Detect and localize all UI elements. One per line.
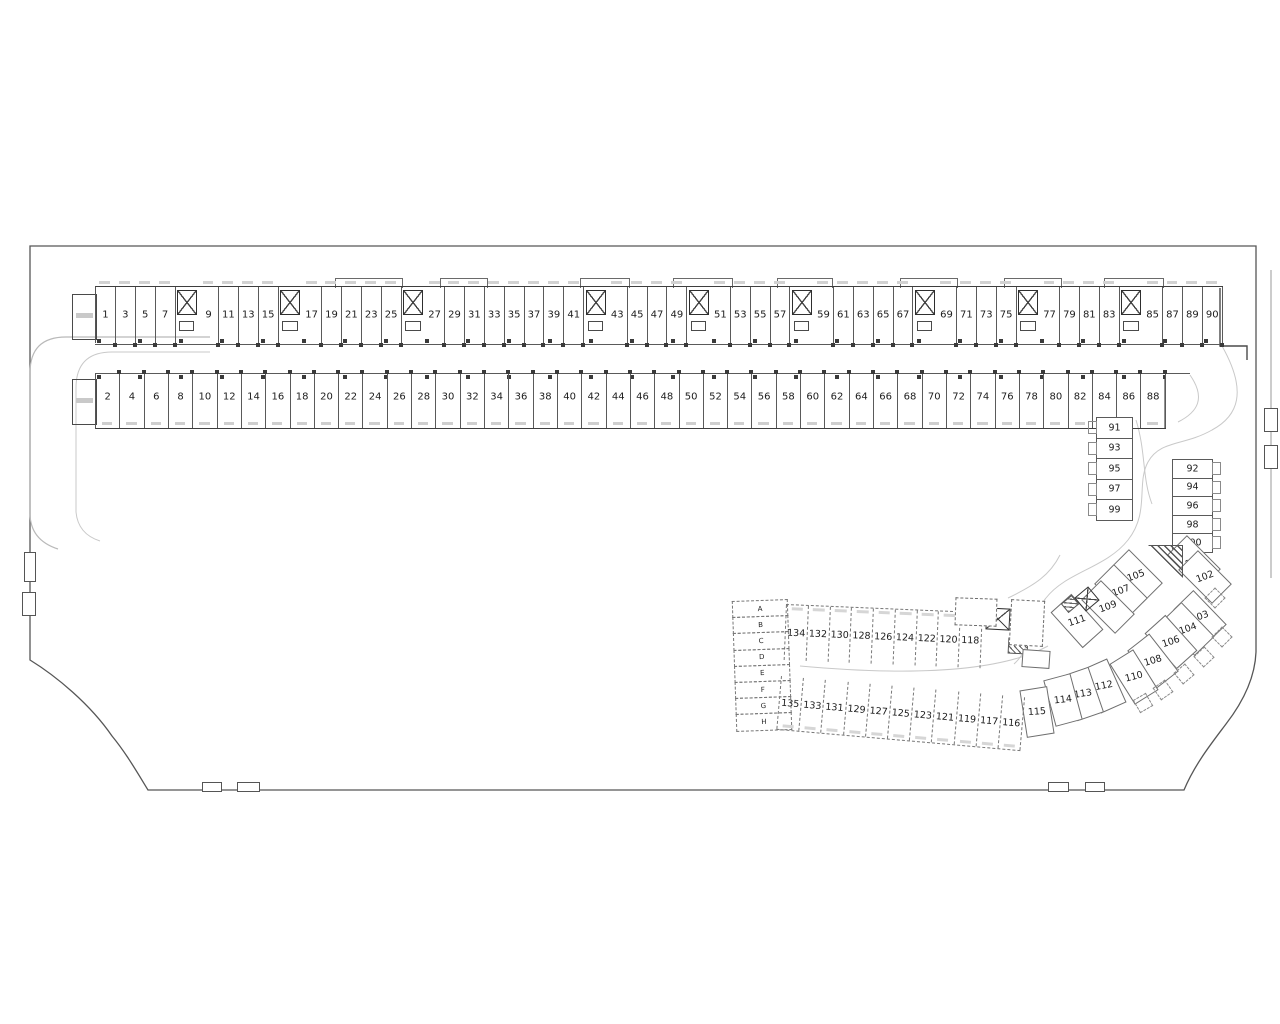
stall-number: 2 <box>104 391 110 402</box>
stall-number: 110 <box>1124 669 1144 684</box>
stall-number: 97 <box>1108 484 1120 495</box>
parking-stall-56: 56 <box>752 374 776 428</box>
stall-number: 114 <box>1053 693 1072 706</box>
stall-number: 52 <box>709 391 722 402</box>
parking-stall-11: 11 <box>219 287 239 343</box>
stall-number: 55 <box>754 310 767 321</box>
stall-number: 35 <box>508 310 521 321</box>
stall-number: 85 <box>1146 310 1159 321</box>
parking-stall-4: 4 <box>120 374 144 428</box>
stall-number: 22 <box>344 391 357 402</box>
stall-number: 134 <box>787 627 806 639</box>
stall-number: 130 <box>830 629 849 641</box>
boundary-gate <box>202 782 222 792</box>
stall-number: 111 <box>1067 613 1088 629</box>
parking-stall-87: 87 <box>1163 287 1183 343</box>
parking-stall-1: 1 <box>96 287 116 343</box>
stall-number: 46 <box>636 391 649 402</box>
stall-number: 18 <box>296 391 309 402</box>
stall-number: 108 <box>1143 653 1164 669</box>
parking-stall-47: 47 <box>648 287 668 343</box>
stall-number: 124 <box>896 632 915 644</box>
stall-number: 29 <box>448 310 461 321</box>
stall-number: 96 <box>1186 500 1198 511</box>
parking-stall-62: 62 <box>825 374 849 428</box>
boundary-gate <box>237 782 260 792</box>
stair-elevator-box <box>1120 287 1144 343</box>
stall-number: 72 <box>952 391 965 402</box>
parking-stall-69: 69 <box>937 287 957 343</box>
stall-number: 127 <box>869 705 888 718</box>
drive-lane-curve <box>1136 420 1152 504</box>
stall-number: 117 <box>980 715 999 728</box>
stall-number: 32 <box>466 391 479 402</box>
parking-stall-23: 23 <box>362 287 382 343</box>
parking-stall-79: 79 <box>1060 287 1080 343</box>
stall-number: 51 <box>714 310 727 321</box>
stall-number: 61 <box>837 310 850 321</box>
stall-number: 91 <box>1108 422 1120 433</box>
stall-number: G <box>761 702 767 710</box>
stall-number: 49 <box>671 310 684 321</box>
parking-stall-63: 63 <box>854 287 874 343</box>
parking-stall-73: 73 <box>977 287 997 343</box>
parking-stall-36: 36 <box>509 374 533 428</box>
parking-stall-49: 49 <box>667 287 687 343</box>
stall-number: 44 <box>612 391 625 402</box>
service-room <box>955 597 998 626</box>
stair-elevator-box <box>584 287 608 343</box>
parking-stall-59: 59 <box>814 287 834 343</box>
parking-stall-83: 83 <box>1100 287 1120 343</box>
stall-number: 119 <box>958 713 977 726</box>
stall-column-91-99: 9193959799 <box>1096 417 1133 521</box>
parking-stall-93: 93 <box>1096 439 1133 460</box>
parking-stall-41: 41 <box>564 287 584 343</box>
stall-number: 121 <box>935 711 954 724</box>
stall-number: 90 <box>1206 310 1219 321</box>
stall-number: 133 <box>803 699 822 712</box>
stall-number: 8 <box>177 391 183 402</box>
parking-stall-80: 80 <box>1044 374 1068 428</box>
parking-stall-20: 20 <box>315 374 339 428</box>
stall-number: 19 <box>325 310 338 321</box>
stall-number: 129 <box>847 703 866 716</box>
stall-number: 63 <box>857 310 870 321</box>
parking-stall-9: 9 <box>199 287 219 343</box>
stall-number: 70 <box>928 391 941 402</box>
stall-number: 33 <box>488 310 501 321</box>
stair-elevator-box <box>913 287 937 343</box>
parking-stall-88: 88 <box>1141 374 1165 428</box>
lower-upper-stall-row: 134132130128126124122120118 <box>784 604 983 668</box>
parking-stall-45: 45 <box>628 287 648 343</box>
parking-stall-116: 116 <box>998 695 1025 750</box>
stall-number: 68 <box>904 391 917 402</box>
parking-stall-34: 34 <box>485 374 509 428</box>
stall-number: 57 <box>774 310 787 321</box>
stall-number: 45 <box>631 310 644 321</box>
parking-stall-122: 122 <box>915 611 939 667</box>
parking-stall-99: 99 <box>1096 500 1133 521</box>
stall-number: 53 <box>734 310 747 321</box>
stall-number: 58 <box>782 391 795 402</box>
parking-stall-94: 94 <box>1172 479 1213 498</box>
parking-stall-98: 98 <box>1172 516 1213 535</box>
parking-stall-2: 2 <box>96 374 120 428</box>
parking-stall-126: 126 <box>872 609 896 665</box>
parking-stall-124: 124 <box>893 610 917 666</box>
stall-number: 95 <box>1108 463 1120 474</box>
parking-stall-60: 60 <box>801 374 825 428</box>
parking-stall-54: 54 <box>728 374 752 428</box>
parking-stall-90: 90 <box>1203 287 1223 343</box>
parking-stall-14: 14 <box>242 374 266 428</box>
parking-stall-78: 78 <box>1020 374 1044 428</box>
parking-stall-40: 40 <box>558 374 582 428</box>
stall-number: 16 <box>271 391 284 402</box>
parking-stall-85: 85 <box>1143 287 1163 343</box>
stair-elevator-box <box>176 287 200 343</box>
stall-number: 74 <box>977 391 990 402</box>
parking-stall-5: 5 <box>136 287 156 343</box>
stall-number: 71 <box>960 310 973 321</box>
stall-number: 54 <box>733 391 746 402</box>
street-door <box>1264 408 1278 432</box>
stall-number: 135 <box>781 697 800 710</box>
stair-elevator-box <box>687 287 711 343</box>
stall-number: 88 <box>1147 391 1160 402</box>
stall-number: 115 <box>1028 706 1047 718</box>
parking-stall-76: 76 <box>996 374 1020 428</box>
parking-stall-65: 65 <box>874 287 894 343</box>
parking-stall-64: 64 <box>850 374 874 428</box>
stall-number: 12 <box>223 391 236 402</box>
parking-stall-13: 13 <box>239 287 259 343</box>
stall-number: 93 <box>1108 443 1120 454</box>
stall-number: 92 <box>1186 463 1198 474</box>
parking-stall-67: 67 <box>894 287 914 343</box>
parking-stall-31: 31 <box>465 287 485 343</box>
parking-stall-58: 58 <box>777 374 801 428</box>
stall-number: 47 <box>651 310 664 321</box>
stall-number: F <box>761 685 765 693</box>
parking-stall-128: 128 <box>850 608 874 664</box>
stair-elevator-box <box>790 287 814 343</box>
stall-number: 13 <box>242 310 255 321</box>
stall-number: 116 <box>1002 716 1021 729</box>
parking-stall-50: 50 <box>680 374 704 428</box>
stall-number: 81 <box>1083 310 1096 321</box>
parking-stall-92: 92 <box>1172 459 1213 479</box>
parking-stall-16: 16 <box>266 374 290 428</box>
floor-plan-canvas: 1357911131517192123252729313335373941434… <box>0 0 1280 1024</box>
parking-stall-28: 28 <box>412 374 436 428</box>
stall-number: 9 <box>205 310 211 321</box>
stall-number: 56 <box>758 391 771 402</box>
parking-stall-96: 96 <box>1172 497 1213 516</box>
parking-stall-44: 44 <box>607 374 631 428</box>
stall-number: 126 <box>874 631 893 643</box>
stall-number: 128 <box>852 630 871 642</box>
stall-number: 24 <box>369 391 382 402</box>
stall-number: 66 <box>879 391 892 402</box>
stall-number: 99 <box>1108 504 1120 515</box>
parking-stall-70: 70 <box>923 374 947 428</box>
street-door <box>1264 445 1278 469</box>
stall-number: 5 <box>142 310 148 321</box>
parking-stall-72: 72 <box>947 374 971 428</box>
parking-stall-29: 29 <box>445 287 465 343</box>
stall-number: 59 <box>817 310 830 321</box>
parking-stall-17: 17 <box>302 287 322 343</box>
parking-stall-18: 18 <box>291 374 315 428</box>
boundary-gate <box>22 592 36 616</box>
stall-number: 123 <box>913 709 932 722</box>
parking-stall-12: 12 <box>218 374 242 428</box>
stall-number: 4 <box>129 391 135 402</box>
stall-number: 125 <box>891 707 910 720</box>
parking-stall-130: 130 <box>828 607 852 663</box>
vestibule <box>72 294 97 340</box>
parking-stall-22: 22 <box>339 374 363 428</box>
stall-number: 30 <box>442 391 455 402</box>
service-room <box>1009 599 1045 647</box>
parking-stall-52: 52 <box>704 374 728 428</box>
stall-number: C <box>759 637 764 645</box>
stall-number: 14 <box>247 391 260 402</box>
stall-number: 39 <box>548 310 561 321</box>
stall-number: 11 <box>222 310 235 321</box>
parking-stall-3: 3 <box>116 287 136 343</box>
parking-stall-77: 77 <box>1040 287 1060 343</box>
stall-number: 25 <box>385 310 398 321</box>
entry-ramp-outer <box>30 337 210 549</box>
stall-number: 43 <box>611 310 624 321</box>
parking-stall-7: 7 <box>156 287 176 343</box>
parking-stall-43: 43 <box>608 287 628 343</box>
parking-stall-68: 68 <box>898 374 922 428</box>
bottom-stall-row: 2468101214161820222426283032343638404244… <box>95 374 1166 429</box>
stall-number: 94 <box>1186 482 1198 493</box>
stall-number: 21 <box>345 310 358 321</box>
stall-number: 60 <box>806 391 819 402</box>
parking-stall-32: 32 <box>461 374 485 428</box>
aisle-edge-upper <box>95 344 1222 345</box>
parking-stall-81: 81 <box>1080 287 1100 343</box>
parking-stall-24: 24 <box>363 374 387 428</box>
parking-stall-42: 42 <box>582 374 606 428</box>
parking-stall-10: 10 <box>193 374 217 428</box>
stall-number: 79 <box>1063 310 1076 321</box>
stall-number: 36 <box>515 391 528 402</box>
stair-elevator-box <box>1017 287 1041 343</box>
stair-elevator-box <box>402 287 426 343</box>
parking-stall-53: 53 <box>731 287 751 343</box>
boundary-gate <box>24 552 36 582</box>
parking-stall-71: 71 <box>957 287 977 343</box>
stall-number: 87 <box>1166 310 1179 321</box>
stall-number: 69 <box>940 310 953 321</box>
stall-number: 41 <box>567 310 580 321</box>
stall-number: 76 <box>1001 391 1014 402</box>
parking-stall-134: 134 <box>784 605 809 661</box>
parking-stall-6: 6 <box>145 374 169 428</box>
drive-lane-curve <box>1178 375 1199 422</box>
stall-number: 27 <box>428 310 441 321</box>
stall-number: 86 <box>1122 391 1135 402</box>
parking-stall-89: 89 <box>1183 287 1203 343</box>
stall-number: 64 <box>855 391 868 402</box>
boundary-gate <box>1085 782 1105 792</box>
parking-stall-8: 8 <box>169 374 193 428</box>
parking-stall-48: 48 <box>655 374 679 428</box>
stall-number: 34 <box>490 391 503 402</box>
parking-stall-38: 38 <box>534 374 558 428</box>
stall-number: 48 <box>660 391 673 402</box>
parking-stall-57: 57 <box>771 287 791 343</box>
stall-number: 83 <box>1103 310 1116 321</box>
stall-number: 40 <box>563 391 576 402</box>
stair-elevator-box <box>279 287 303 343</box>
stall-number: 67 <box>897 310 910 321</box>
stall-number: 98 <box>1186 519 1198 530</box>
parking-stall-55: 55 <box>751 287 771 343</box>
service-room <box>1021 649 1050 669</box>
parking-stall-25: 25 <box>382 287 402 343</box>
stall-number: 77 <box>1043 310 1056 321</box>
stall-number: B <box>758 621 763 629</box>
parking-stall-74: 74 <box>971 374 995 428</box>
boundary-gate <box>1048 782 1069 792</box>
parking-stall-95: 95 <box>1096 459 1133 480</box>
parking-stall-39: 39 <box>544 287 564 343</box>
stall-number: 120 <box>939 633 958 645</box>
parking-stall-19: 19 <box>322 287 342 343</box>
stall-number: 73 <box>980 310 993 321</box>
stall-number: 75 <box>1000 310 1013 321</box>
stall-number: 80 <box>1049 391 1062 402</box>
stall-number: E <box>760 669 765 677</box>
stall-number: 3 <box>122 310 128 321</box>
stall-number: 31 <box>468 310 481 321</box>
stall-number: 1 <box>102 310 108 321</box>
parking-stall-66: 66 <box>874 374 898 428</box>
parking-stall-30: 30 <box>436 374 460 428</box>
stall-number: 122 <box>917 633 936 645</box>
parking-stall-35: 35 <box>505 287 525 343</box>
stall-number: 26 <box>393 391 406 402</box>
parking-stall-15: 15 <box>259 287 279 343</box>
parking-stall-51: 51 <box>711 287 731 343</box>
stall-number: 65 <box>877 310 890 321</box>
parking-stall-75: 75 <box>997 287 1017 343</box>
stall-number: 37 <box>528 310 541 321</box>
stall-number: 78 <box>1025 391 1038 402</box>
stall-number: 50 <box>685 391 698 402</box>
parking-stall-91: 91 <box>1096 417 1133 439</box>
stall-number: 28 <box>417 391 430 402</box>
stall-number: 84 <box>1098 391 1111 402</box>
stall-column-92-100: 92949698100 <box>1172 459 1213 553</box>
stall-number: 62 <box>831 391 844 402</box>
stall-number: 42 <box>588 391 601 402</box>
stall-number: D <box>759 653 765 661</box>
stall-number: 10 <box>199 391 212 402</box>
stall-number: 132 <box>809 628 828 640</box>
stall-number: 118 <box>961 634 980 646</box>
stall-number: 89 <box>1186 310 1199 321</box>
stall-number: 38 <box>539 391 552 402</box>
stall-number: 109 <box>1098 599 1119 616</box>
stall-number: 17 <box>305 310 318 321</box>
stall-number: 23 <box>365 310 378 321</box>
parking-stall-21: 21 <box>342 287 362 343</box>
parking-stall-27: 27 <box>425 287 445 343</box>
stall-number: 15 <box>262 310 275 321</box>
parking-stall-37: 37 <box>525 287 545 343</box>
stall-number: 131 <box>825 701 844 714</box>
stall-number: H <box>761 718 767 726</box>
parking-stall-82: 82 <box>1069 374 1093 428</box>
parking-stall-132: 132 <box>806 606 830 662</box>
vestibule <box>72 379 97 425</box>
stall-number: 102 <box>1195 569 1216 586</box>
parking-stall-61: 61 <box>834 287 854 343</box>
stall-number: 20 <box>320 391 333 402</box>
parking-stall-33: 33 <box>485 287 505 343</box>
parking-stall-46: 46 <box>631 374 655 428</box>
stall-number: A <box>758 605 763 613</box>
stall-number: 7 <box>162 310 168 321</box>
parking-stall-97: 97 <box>1096 480 1133 501</box>
parking-stall-26: 26 <box>388 374 412 428</box>
top-stall-row: 1357911131517192123252729313335373941434… <box>95 286 1223 343</box>
stall-number: 106 <box>1161 634 1182 650</box>
stall-number: 6 <box>153 391 159 402</box>
stall-number: 82 <box>1074 391 1087 402</box>
